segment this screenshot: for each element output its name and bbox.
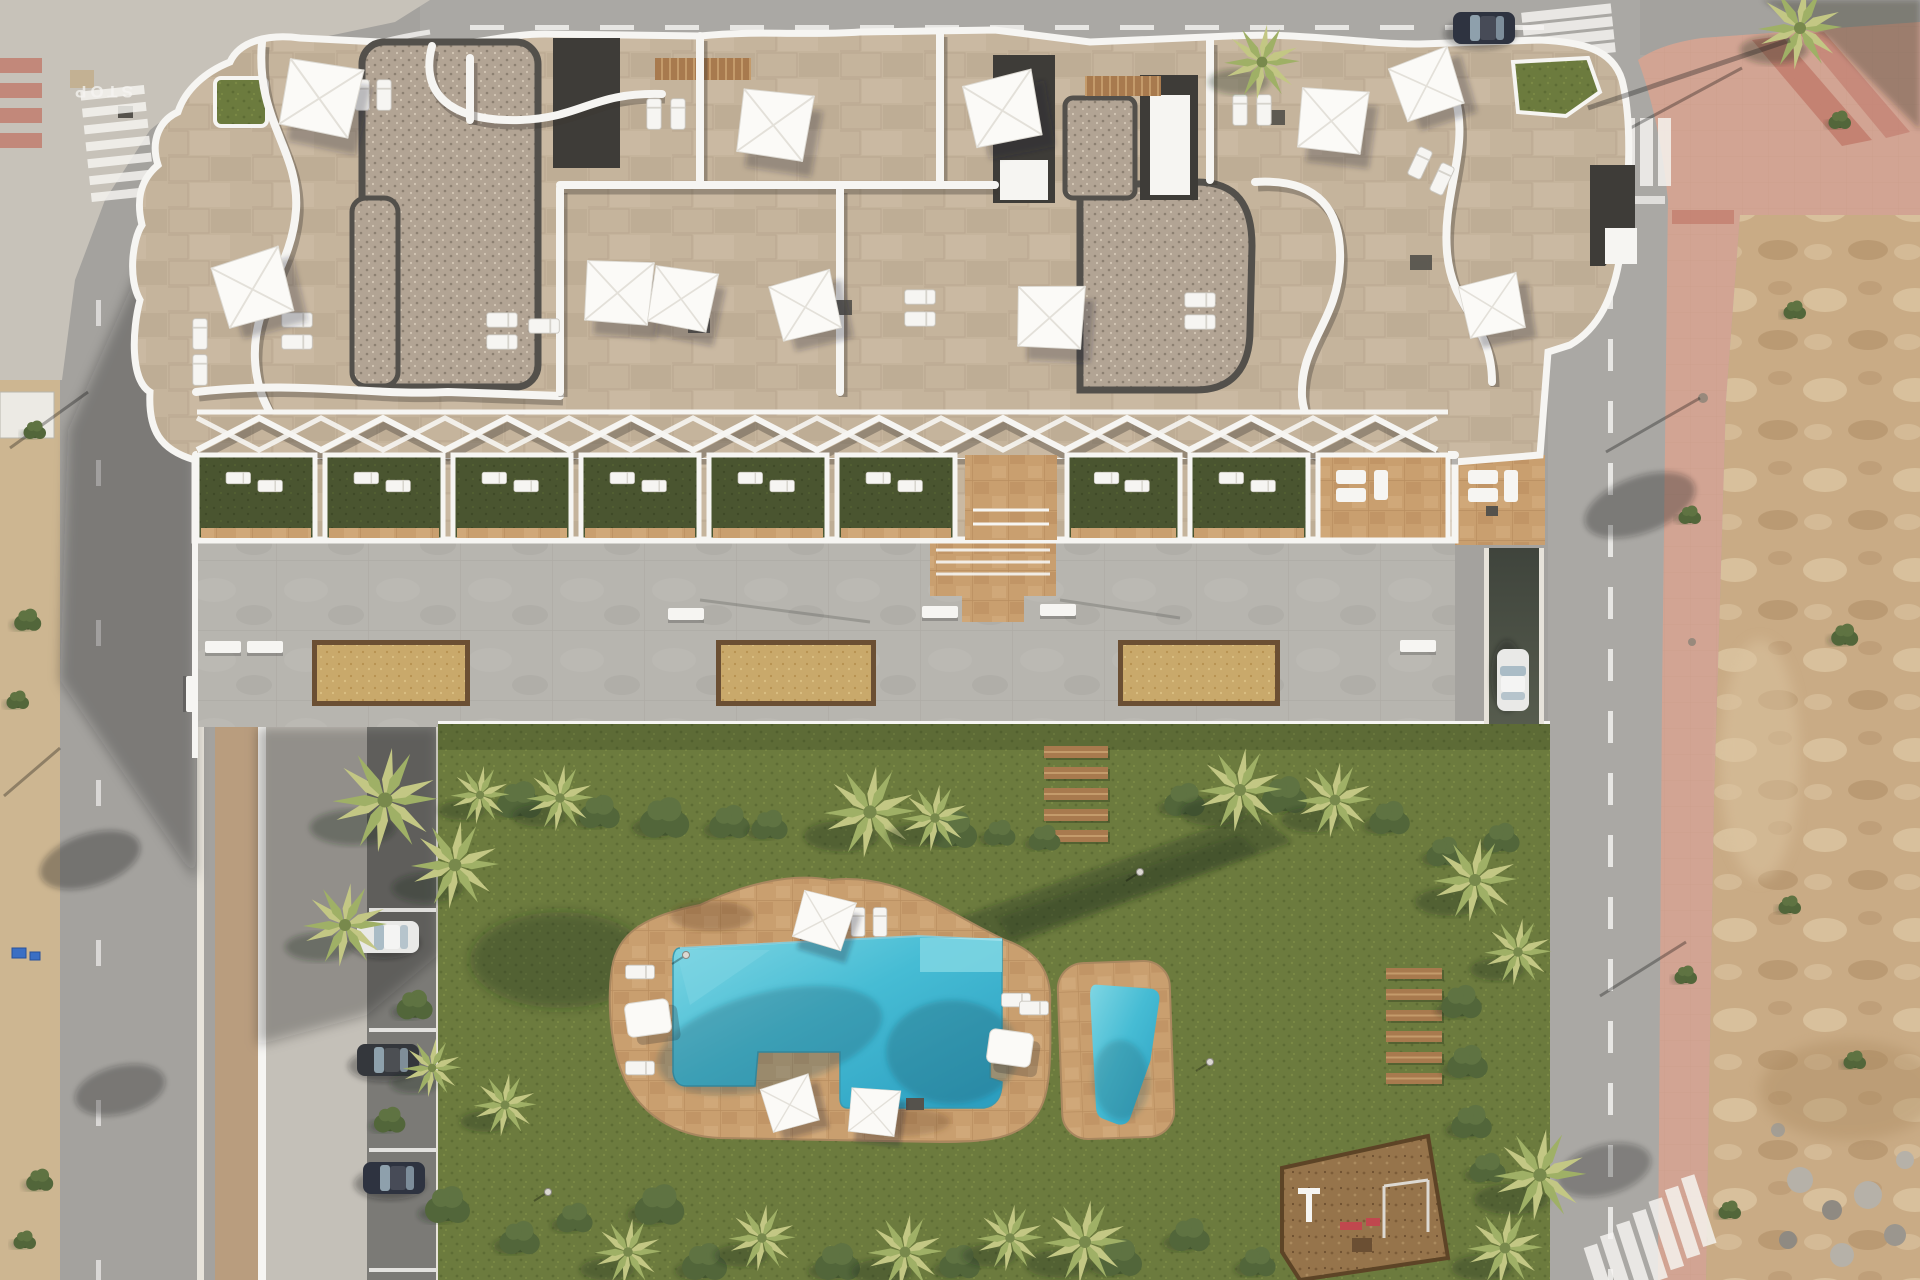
sun-lounger (487, 313, 518, 327)
rooflight2 (1150, 95, 1190, 195)
corner-white-box (1605, 228, 1637, 264)
car (1444, 12, 1516, 50)
sun-lounger (1185, 315, 1216, 329)
lane-dash (1608, 401, 1613, 433)
entry-landing (962, 596, 1024, 622)
gym-post (1306, 1192, 1312, 1222)
garden-lamp (683, 952, 690, 959)
sun-lounger (647, 99, 661, 130)
wood-plank (1044, 767, 1110, 781)
stop-marking-left: STOP (71, 82, 133, 101)
manhole-2 (1688, 638, 1696, 646)
bench (922, 606, 958, 621)
lane-dash (1608, 339, 1613, 371)
terrace-unit-stone (1318, 455, 1448, 540)
parking-line (369, 1268, 436, 1272)
gym-bar (1298, 1188, 1320, 1194)
gravel-roof-left-bulge (352, 198, 398, 386)
lane-dash (96, 780, 101, 806)
garden-lamp (545, 1189, 552, 1196)
lane-dash (1608, 649, 1613, 681)
roof-garden-left (215, 78, 267, 126)
lawn-wall-shade (438, 724, 1550, 750)
lane-dash (1120, 25, 1154, 30)
car (1491, 640, 1529, 712)
sun-lounger (529, 319, 560, 333)
lane-dash (96, 1260, 101, 1280)
ground-terraces (197, 455, 1448, 540)
terrace-unit-turf (709, 455, 827, 540)
wood-plank (1044, 788, 1110, 802)
plaza-west-wall (192, 538, 198, 758)
bench (668, 608, 704, 623)
wood-plank (1386, 1073, 1444, 1086)
terrace-unit-turf (1067, 455, 1180, 540)
small-pool-area (1057, 960, 1175, 1140)
parking-line (369, 1028, 436, 1032)
sun-lounger (642, 480, 666, 492)
wood-plank (1044, 809, 1110, 823)
pink-stripe (0, 58, 42, 73)
sun-lounger (482, 472, 506, 484)
sun-lounger (193, 319, 207, 350)
lane-dash (1608, 897, 1613, 929)
sun-lounger (282, 335, 313, 349)
lane-dash (1608, 711, 1613, 743)
sun-lounger (354, 472, 378, 484)
terrace-unit-turf (837, 455, 955, 540)
sun-lounger (738, 472, 762, 484)
lane-dash (665, 25, 699, 30)
sun-lounger (514, 480, 538, 492)
lane-dash (795, 25, 829, 30)
lane-dash (1380, 25, 1414, 30)
lane-dash (1185, 25, 1219, 30)
bench (1400, 640, 1436, 655)
bench (205, 641, 241, 656)
lane-dash (1608, 959, 1613, 991)
deck-shadow (670, 901, 754, 931)
sun-lounger (1125, 480, 1149, 492)
deck-table (906, 1098, 924, 1110)
lane-dash (1608, 1269, 1613, 1280)
sun-lounger (1219, 472, 1243, 484)
lane-dash (96, 300, 101, 326)
wood-pergola2 (1085, 76, 1161, 96)
lane-dash (470, 25, 504, 30)
rooflight (1000, 160, 1048, 200)
terrace-unit-turf (1190, 455, 1308, 540)
gym-seat-red (1366, 1218, 1380, 1226)
pink-stripe (0, 133, 42, 148)
pool-shelf (920, 938, 1002, 972)
garden-lamp (1207, 1059, 1214, 1066)
sun-lounger (866, 472, 890, 484)
sun-lounger (258, 480, 282, 492)
bench (183, 676, 198, 712)
sun-lounger (671, 99, 685, 130)
lane-dash (1608, 587, 1613, 619)
plaza-planter (1118, 640, 1280, 706)
sun-lounger (1020, 1001, 1049, 1015)
lane-dash (1608, 835, 1613, 867)
terrace-unit-turf (581, 455, 699, 540)
lane-dash (1608, 1083, 1613, 1115)
sun-lounger (1257, 95, 1271, 126)
sun-lounger (1185, 293, 1216, 307)
plaza-planter (716, 640, 876, 706)
sun-lounger (386, 480, 410, 492)
bench (1040, 604, 1076, 619)
lane-dash (1315, 25, 1349, 30)
lane-dash (1608, 773, 1613, 805)
sun-lounger (1233, 95, 1247, 126)
sun-lounger (377, 80, 391, 111)
gym-bench-red (1340, 1222, 1362, 1230)
terrace-unit-corridor (965, 455, 1057, 540)
bench (247, 641, 283, 656)
tan-sidewalk (215, 727, 258, 1280)
sun-lounger (770, 480, 794, 492)
sun-lounger (610, 472, 634, 484)
pink-stripe (0, 83, 42, 98)
lane-dash (535, 25, 569, 30)
lane-dash (730, 25, 764, 30)
aerial-architectural-render: STOP STOP (0, 0, 1920, 1280)
lane-dash (1055, 25, 1089, 30)
dirt-shading2 (1720, 640, 1800, 880)
trash-bin (30, 952, 40, 960)
sun-lounger (226, 472, 250, 484)
pergola-zigzag (197, 410, 1448, 458)
sun-lounger (193, 355, 207, 386)
lane-dash (1608, 1021, 1613, 1053)
wood-plank (1386, 989, 1444, 1002)
pink-stripe (0, 108, 42, 123)
wood-plank (1386, 968, 1444, 981)
sun-lounger (1094, 472, 1118, 484)
sun-lounger (626, 1061, 655, 1075)
trash-bin (12, 948, 26, 958)
lane-dash (600, 25, 634, 30)
wood-plank (1044, 746, 1110, 760)
sun-lounger (487, 335, 518, 349)
sun-lounger (905, 312, 936, 326)
sun-lounger (1251, 480, 1275, 492)
entry-path (930, 538, 1056, 596)
planters (312, 640, 1280, 706)
wood-plank (1386, 1031, 1444, 1044)
lane-dash (1510, 25, 1544, 30)
lane-dash (96, 940, 101, 966)
terrace-unit-turf (325, 455, 443, 540)
terrace-unit-turf (453, 455, 571, 540)
sun-lounger (898, 480, 922, 492)
plaza-planter (312, 640, 470, 706)
terrace-unit-turf (197, 455, 315, 540)
aerial-scene: STOP STOP (0, 0, 1920, 1280)
car (354, 1162, 426, 1200)
roof-table (1410, 255, 1432, 270)
parking-line (369, 1148, 436, 1152)
left-sand-strip (0, 380, 60, 1280)
wood-plank (1386, 1052, 1444, 1065)
play-box (1352, 1238, 1372, 1252)
sun-lounger (626, 965, 655, 979)
wood-plank (1386, 1010, 1444, 1023)
sun-lounger (873, 908, 887, 937)
gravel-roof-small (1065, 98, 1135, 198)
garden-lamp (1137, 869, 1144, 876)
sun-lounger (905, 290, 936, 304)
gravel-roof-right (1080, 182, 1252, 390)
lane-dash (1608, 1207, 1613, 1239)
